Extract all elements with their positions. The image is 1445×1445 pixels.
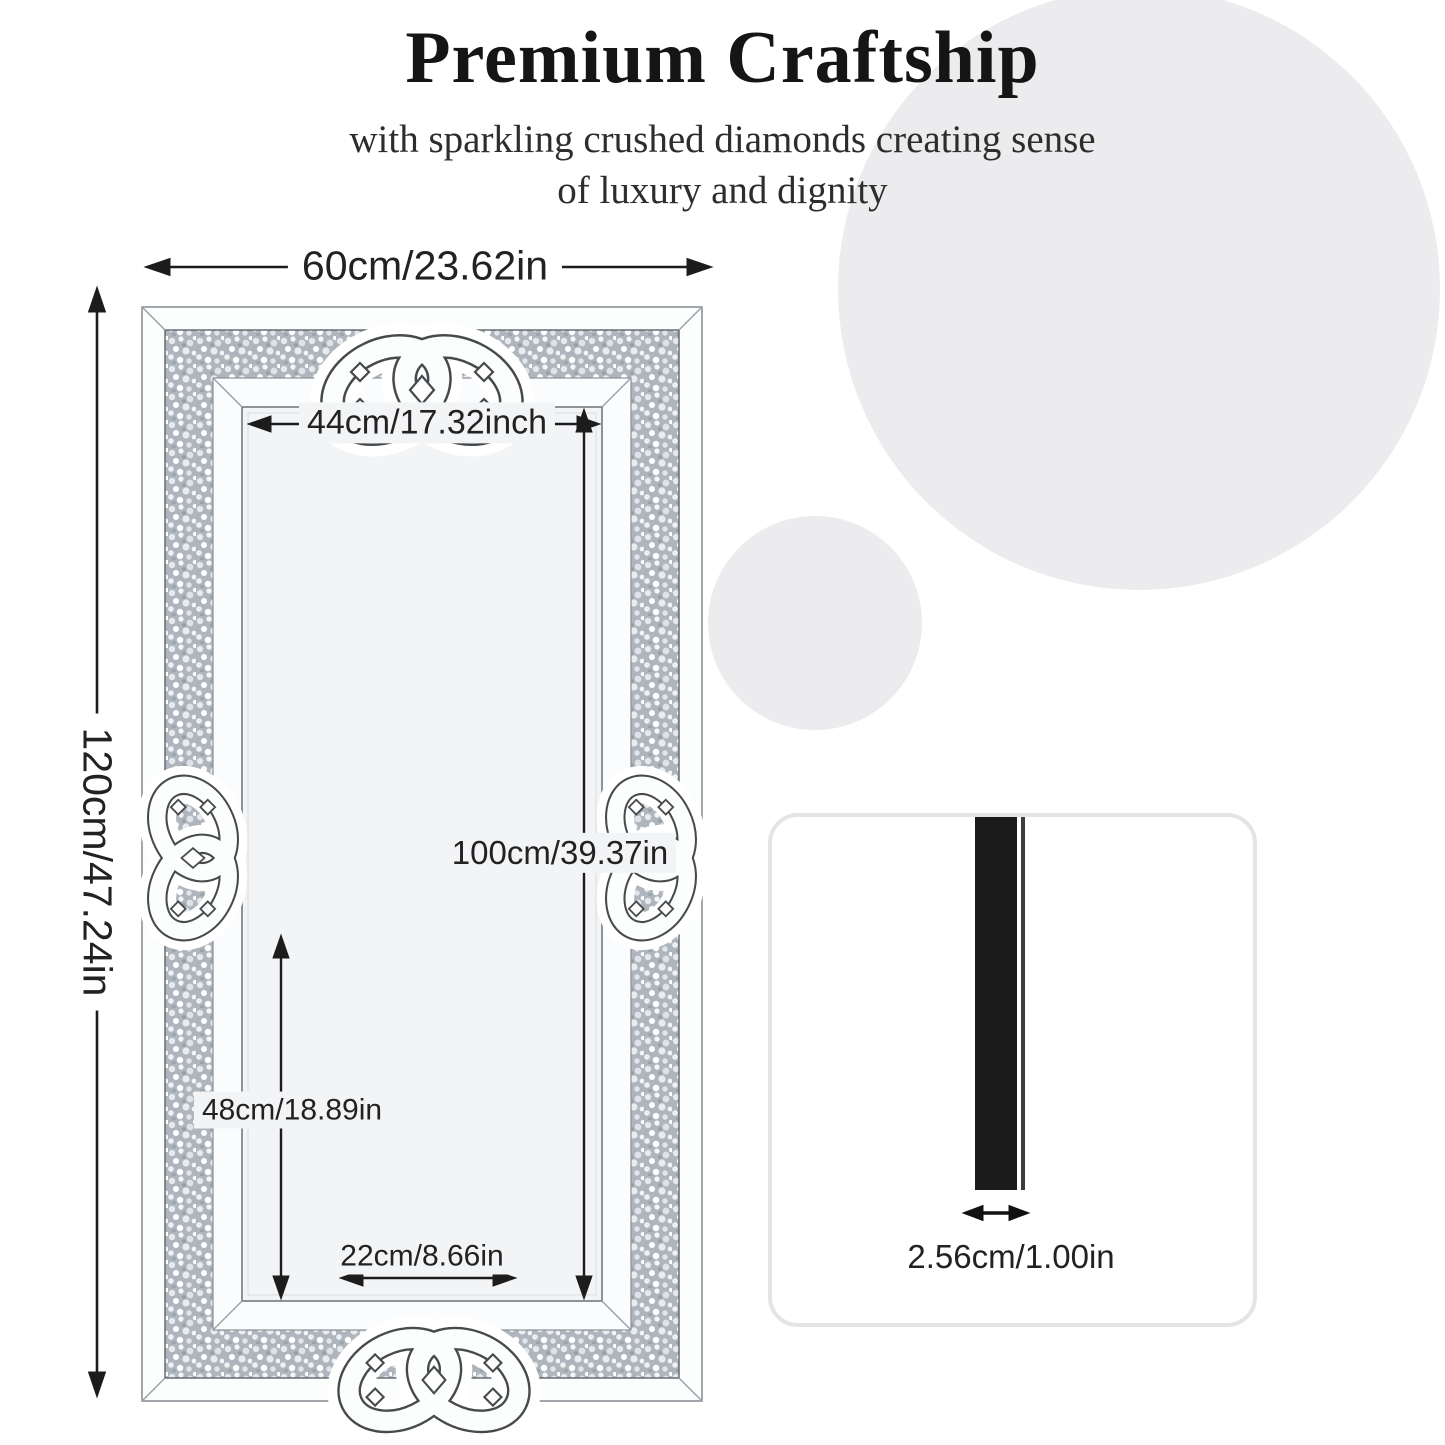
page: Premium Craftship with sparkling crushed… bbox=[0, 0, 1445, 1445]
header: Premium Craftship with sparkling crushed… bbox=[0, 20, 1445, 217]
label-thickness: 2.56cm/1.00in bbox=[907, 1238, 1114, 1276]
thickness-card: 2.56cm/1.00in bbox=[768, 813, 1257, 1327]
label-lower-height: 48cm/18.89in bbox=[194, 1092, 390, 1129]
knot-bottom-icon bbox=[335, 1323, 532, 1438]
subtitle-line-1: with sparkling crushed diamonds creating… bbox=[0, 114, 1445, 165]
label-inner-height: 100cm/39.37in bbox=[444, 833, 676, 873]
label-outer-height: 120cm/47.24in bbox=[72, 714, 121, 1011]
label-inner-width: 44cm/17.32inch bbox=[299, 402, 555, 443]
page-title: Premium Craftship bbox=[0, 20, 1445, 98]
label-bottom-width: 22cm/8.66in bbox=[332, 1238, 511, 1275]
label-outer-width: 60cm/23.62in bbox=[288, 241, 562, 290]
subtitle-line-2: of luxury and dignity bbox=[0, 165, 1445, 216]
thickness-arrow-icon bbox=[961, 1201, 1031, 1225]
knot-left-icon bbox=[143, 773, 242, 943]
mirror-side-edge-line bbox=[1021, 817, 1025, 1190]
mirror-side-profile bbox=[975, 817, 1017, 1190]
background-circle-medium bbox=[708, 516, 922, 730]
